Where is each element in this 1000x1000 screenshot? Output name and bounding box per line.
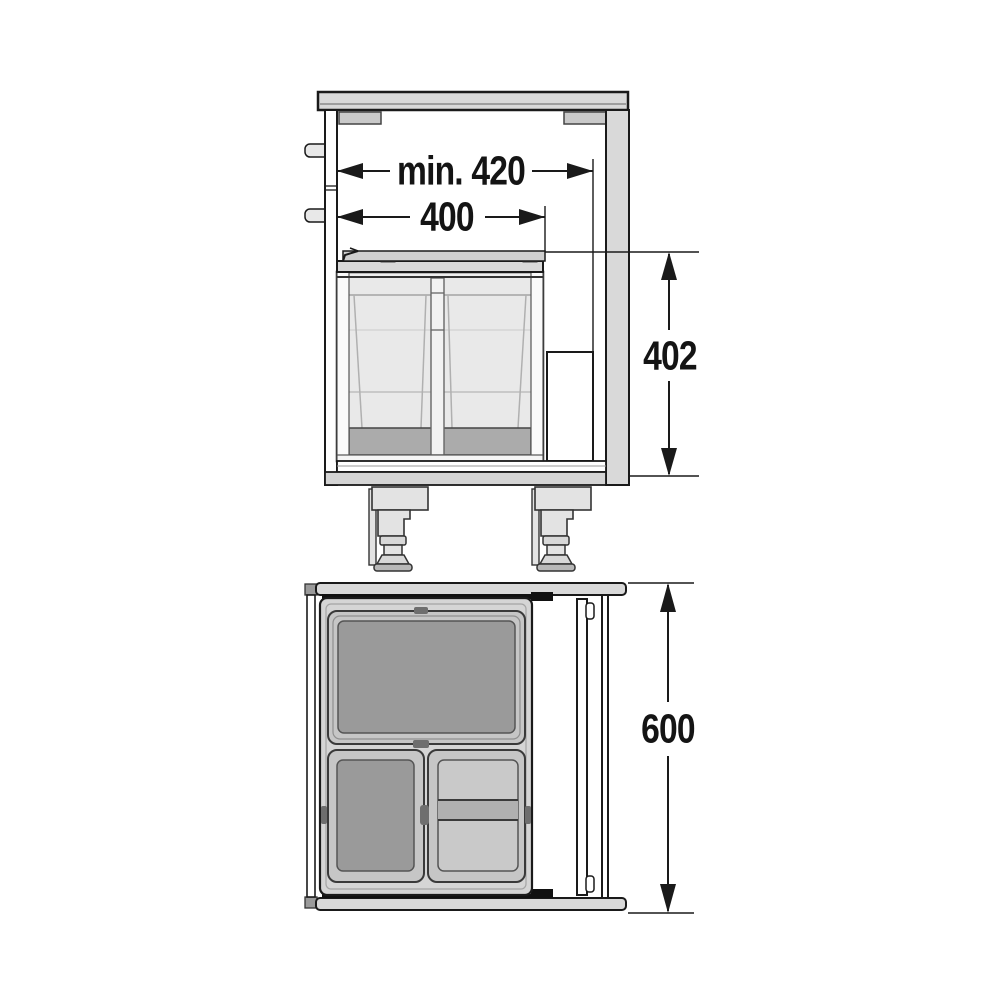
top-view (305, 583, 694, 913)
front-rail (316, 583, 626, 595)
bin-lid (337, 248, 545, 272)
mounting-bracket-right (564, 112, 606, 124)
diagram-canvas: min. 420 400 402 600 (0, 0, 1000, 1000)
dimension-label-min-depth: min. 420 (397, 151, 525, 192)
bin-divider (431, 278, 444, 455)
runner-frame (547, 352, 593, 461)
small-bin-lid-right (428, 750, 525, 882)
large-bin-lid (328, 611, 525, 744)
cabinet-leg-left (369, 487, 428, 571)
cabinet-leg-right (532, 487, 591, 571)
left-side-wall (305, 584, 317, 908)
back-rail (316, 898, 626, 910)
open-door (577, 599, 594, 895)
countertop (318, 92, 628, 110)
small-bin-lid-left (328, 750, 424, 882)
cabinet-floor (325, 461, 606, 485)
dimension-label-cabinet-depth: 600 (641, 709, 695, 750)
mounting-bracket-left (339, 112, 381, 124)
dimension-label-bin-width: 400 (420, 197, 474, 238)
cabinet-side-panel (606, 110, 629, 485)
waste-bin-unit (337, 248, 545, 462)
right-side-wall (602, 595, 608, 898)
cabinet-door (325, 110, 337, 485)
dimension-label-bin-height: 402 (643, 336, 697, 377)
